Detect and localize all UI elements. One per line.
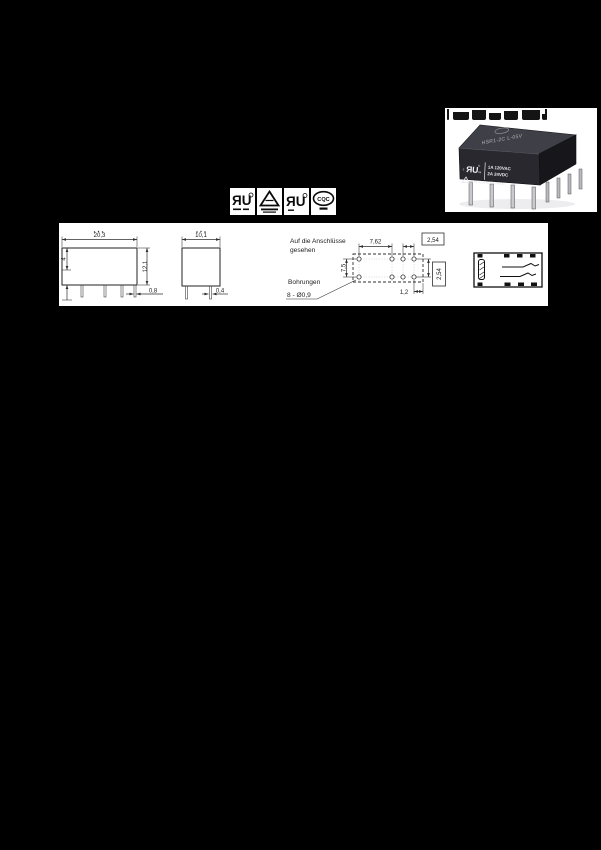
dim-row-gap: 7,5 [342,263,348,272]
wiring-schematic [474,253,542,287]
note-view-line2: gesehen [290,247,316,254]
datasheet-page: { "page": { "background": "#000000" }, "… [0,0,601,850]
ul-mark-icon: ЯU [466,164,479,175]
dim-edge-off: 1,2 [400,290,409,296]
vde-triangle-icon [261,192,279,206]
dim-side-width: 10,1 [195,233,207,239]
ul-recognized-icon: ЯU [232,193,251,208]
dim-pitch-c: 2,54 [437,268,443,280]
dim-front-height: 12,1 [143,260,149,272]
note-view-line1: Auf die Anschlüsse [290,238,346,245]
ul-recognized-logo-2: ЯU [284,188,309,215]
product-photo-region: HSR1-2C L-05V c ЯU ® us 1A 120VAC 2A 24V… [445,108,597,212]
ul-recognized-logo: ЯU [230,188,255,215]
cropped-title-fragment [445,108,597,121]
dim-front-width: 20,3 [94,233,106,239]
note-holes-title: Bohrungen [288,279,321,286]
side-view: 10,1 0,4 [182,231,228,299]
ul-recognized-icon-2: ЯU [286,194,305,209]
pcb-hole-pattern: 7,62 2,54 7,5 2,54 1,2 [342,233,446,296]
dim-pitch-a: 7,62 [370,240,382,246]
dim-pin-width-front: 0,8 [149,289,158,295]
cqc-text: CQC [317,197,329,203]
cqc-logo: CQC [311,188,336,215]
dim-pitch-b: 2,54 [427,238,439,244]
relay-photo: HSR1-2C L-05V c ЯU ® us 1A 120VAC 2A 24V… [445,108,597,212]
dim-pin-width-side: 0,4 [216,289,225,295]
contact-lower [500,273,536,277]
relay-shadow [459,199,575,209]
front-view: 20,3 12,1 4 0,8 [62,231,164,300]
certification-logos: ЯU ЯU CQC [230,188,338,215]
contact-upper [502,264,539,268]
vde-logo [257,188,282,215]
dimensional-drawing: 20,3 12,1 4 0,8 [59,223,548,306]
note-holes-spec: 8 - Ø0,9 [287,292,311,299]
